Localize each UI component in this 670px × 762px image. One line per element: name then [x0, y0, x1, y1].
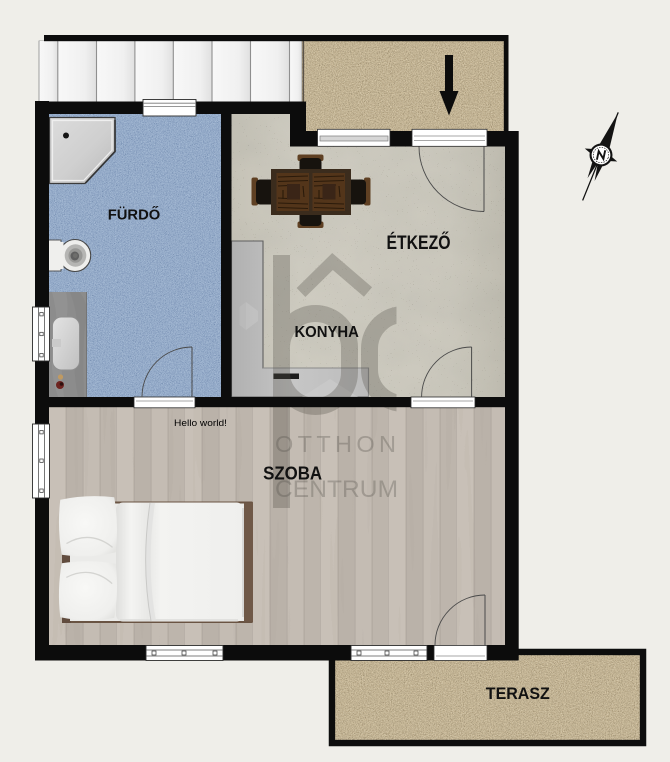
- svg-text:Hello world!: Hello world!: [174, 418, 227, 429]
- svg-text:ÉTKEZŐ: ÉTKEZŐ: [387, 232, 451, 254]
- svg-text:KONYHA: KONYHA: [294, 324, 359, 341]
- svg-text:TERASZ: TERASZ: [486, 684, 550, 703]
- svg-text:FÜRDŐ: FÜRDŐ: [108, 206, 161, 224]
- svg-text:SZOBA: SZOBA: [263, 463, 322, 484]
